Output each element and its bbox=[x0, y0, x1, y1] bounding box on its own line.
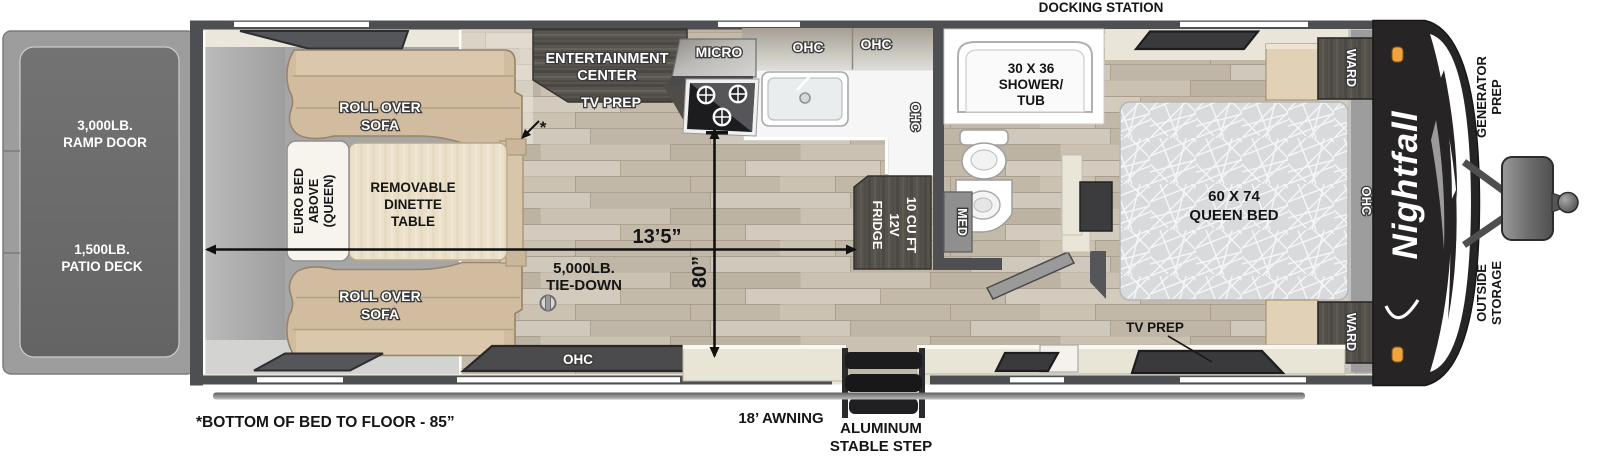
svg-text:30 X 36: 30 X 36 bbox=[1008, 61, 1055, 76]
svg-text:18’ AWNING: 18’ AWNING bbox=[738, 410, 823, 427]
svg-text:TV PREP: TV PREP bbox=[581, 94, 641, 110]
svg-text:13’5”: 13’5” bbox=[633, 226, 682, 248]
svg-text:OHC: OHC bbox=[792, 39, 823, 55]
svg-text:80”: 80” bbox=[689, 256, 711, 288]
svg-text:*: * bbox=[540, 118, 547, 137]
svg-text:WARD: WARD bbox=[1344, 313, 1358, 351]
svg-text:SOFA: SOFA bbox=[361, 306, 399, 322]
svg-text:ABOVE: ABOVE bbox=[307, 179, 321, 223]
svg-text:EURO BED: EURO BED bbox=[292, 168, 306, 234]
svg-text:Nightfall: Nightfall bbox=[1386, 110, 1425, 259]
svg-text:DOCKING STATION: DOCKING STATION bbox=[1039, 0, 1164, 15]
svg-text:ROLL OVER: ROLL OVER bbox=[339, 288, 420, 304]
svg-text:TABLE: TABLE bbox=[391, 214, 435, 229]
svg-text:ALUMINUM: ALUMINUM bbox=[840, 420, 922, 437]
svg-text:FRIDGE: FRIDGE bbox=[870, 200, 885, 249]
svg-text:ENTERTAINMENT: ENTERTAINMENT bbox=[546, 51, 669, 67]
svg-text:MED: MED bbox=[955, 208, 969, 236]
svg-text:ROLL OVER: ROLL OVER bbox=[339, 99, 420, 115]
svg-text:TUB: TUB bbox=[1017, 93, 1045, 108]
svg-text:WARD: WARD bbox=[1344, 49, 1358, 87]
svg-text:OHC: OHC bbox=[563, 352, 593, 367]
svg-text:OUTSIDE: OUTSIDE bbox=[1474, 264, 1489, 322]
svg-text:STORAGE: STORAGE bbox=[1489, 261, 1504, 325]
svg-text:PATIO DECK: PATIO DECK bbox=[61, 259, 143, 274]
svg-text:5,000LB.: 5,000LB. bbox=[553, 260, 615, 277]
svg-text:SOFA: SOFA bbox=[361, 117, 399, 133]
svg-text:TV PREP: TV PREP bbox=[1126, 320, 1184, 335]
svg-text:*BOTTOM OF BED TO FLOOR - 85”: *BOTTOM OF BED TO FLOOR - 85” bbox=[196, 414, 455, 431]
svg-text:RAMP DOOR: RAMP DOOR bbox=[63, 135, 147, 150]
svg-text:GENERATOR: GENERATOR bbox=[1474, 55, 1489, 137]
svg-text:TIE-DOWN: TIE-DOWN bbox=[546, 277, 622, 294]
svg-text:3,000LB.: 3,000LB. bbox=[77, 118, 133, 133]
svg-text:CENTER: CENTER bbox=[577, 68, 637, 84]
svg-text:(QUEEN): (QUEEN) bbox=[322, 175, 336, 228]
svg-text:12V: 12V bbox=[887, 213, 902, 236]
svg-text:DINETTE: DINETTE bbox=[384, 197, 442, 212]
svg-text:STABLE STEP: STABLE STEP bbox=[830, 438, 932, 455]
svg-text:PREP: PREP bbox=[1489, 79, 1504, 115]
svg-text:1,500LB.: 1,500LB. bbox=[74, 242, 130, 257]
svg-text:REMOVABLE: REMOVABLE bbox=[370, 180, 455, 195]
svg-text:60 X 74: 60 X 74 bbox=[1208, 188, 1260, 205]
svg-text:OHC: OHC bbox=[1359, 187, 1374, 217]
svg-text:OHC: OHC bbox=[860, 36, 891, 52]
svg-text:QUEEN BED: QUEEN BED bbox=[1189, 207, 1278, 224]
svg-text:10 CU FT: 10 CU FT bbox=[904, 197, 919, 253]
svg-text:MICRO: MICRO bbox=[696, 44, 743, 60]
svg-text:SHOWER/: SHOWER/ bbox=[999, 77, 1064, 92]
svg-text:OHC: OHC bbox=[908, 103, 923, 133]
